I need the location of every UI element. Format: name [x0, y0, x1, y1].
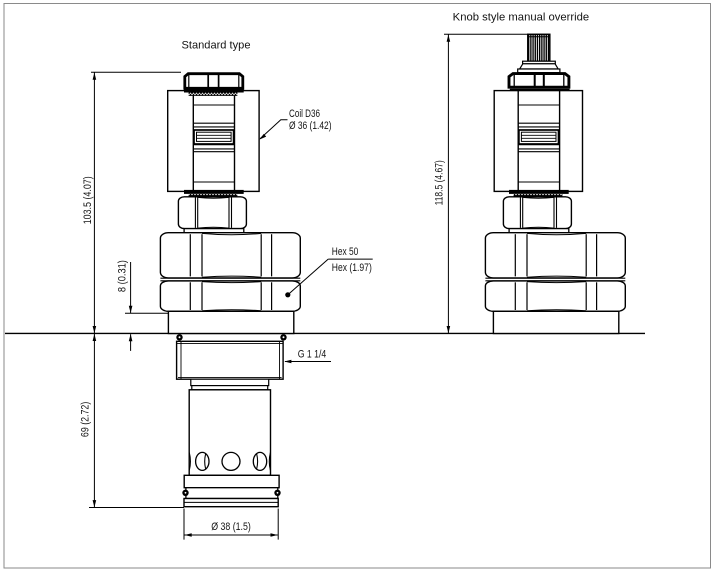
svg-text:8 (0.31): 8 (0.31) [116, 260, 128, 292]
svg-text:Hex (1.97): Hex (1.97) [332, 262, 372, 274]
svg-text:Standard type: Standard type [182, 40, 251, 52]
svg-text:Ø 38 (1.5): Ø 38 (1.5) [211, 521, 251, 533]
svg-text:Knob style manual override: Knob style manual override [453, 12, 590, 24]
svg-text:Ø 36 (1.42): Ø 36 (1.42) [289, 120, 332, 132]
svg-text:118.5 (4.67): 118.5 (4.67) [433, 160, 445, 205]
svg-text:69 (2.72): 69 (2.72) [79, 402, 91, 437]
svg-text:G 1 1/4: G 1 1/4 [298, 349, 327, 361]
svg-text:Hex 50: Hex 50 [332, 246, 359, 258]
svg-text:103.5 (4.07): 103.5 (4.07) [82, 176, 94, 224]
svg-text:Coil D36: Coil D36 [289, 108, 320, 120]
